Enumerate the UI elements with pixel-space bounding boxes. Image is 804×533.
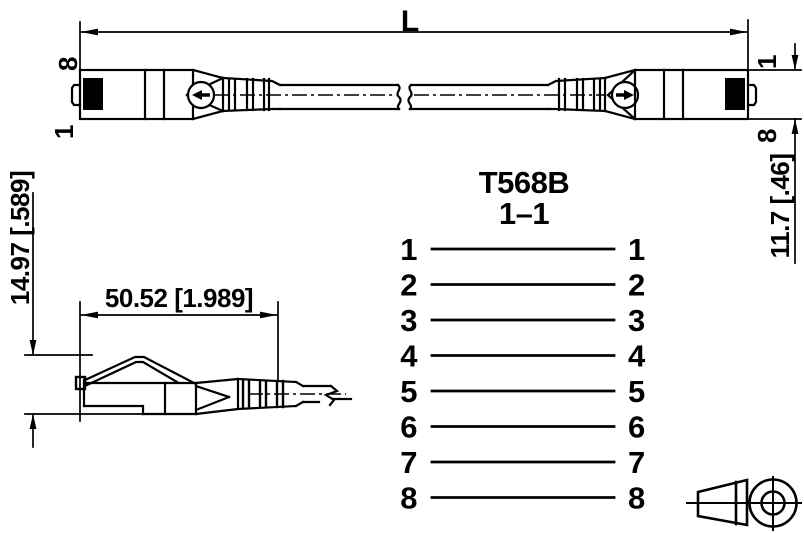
wiring-pin-left-4: 4 [400, 339, 418, 374]
wiring-pin-left-2: 2 [400, 268, 417, 303]
wiring-row-4: 4 4 [400, 339, 646, 374]
plug-contacts [83, 78, 103, 110]
plug-height-dim-label: 14.97 [.589] [5, 171, 35, 305]
wiring-diagram: T568B 1–1 1 1 2 2 3 3 4 4 5 5 6 [400, 165, 646, 516]
plug-contacts [725, 78, 745, 110]
wiring-pin-right-6: 6 [628, 410, 645, 445]
wiring-row-5: 5 5 [400, 374, 645, 409]
plug-nose [748, 85, 756, 105]
side-view: 50.52 [1.989] 14.97 [.589] [5, 171, 351, 447]
wiring-row-6: 6 6 [400, 410, 645, 445]
projection-symbol [687, 477, 801, 530]
left-end-pin-labels: 8 1 [49, 57, 83, 139]
wiring-pin-right-8: 8 [628, 481, 645, 516]
wiring-row-2: 2 2 [400, 268, 645, 303]
wiring-pin-left-5: 5 [400, 374, 417, 409]
right-end-pin1-label: 1 [752, 55, 782, 69]
wiring-pin-left-7: 7 [400, 445, 417, 480]
overall-length-dimension: L [80, 5, 748, 69]
wiring-row-8: 8 8 [400, 481, 645, 516]
wiring-row-3: 3 3 [400, 303, 645, 338]
wiring-standard-label: T568B [479, 165, 570, 200]
wiring-pin-left-8: 8 [400, 481, 417, 516]
plug-length-dim-label: 50.52 [1.989] [105, 283, 253, 313]
top-view: L 8 1 [49, 5, 801, 263]
wiring-row-1: 1 1 [400, 232, 645, 267]
wiring-pin-right-2: 2 [628, 268, 645, 303]
wiring-pin-left-6: 6 [400, 410, 417, 445]
technical-drawing-page: L 8 1 [0, 0, 804, 533]
connector-height-dim-label: 11.7 [.46] [765, 154, 795, 259]
cable-assembly-drawing: L 8 1 [0, 0, 804, 533]
wiring-pin-right-3: 3 [628, 303, 645, 338]
cable-break [397, 85, 400, 109]
plug-nose [72, 85, 80, 105]
wiring-pin-left-3: 3 [400, 303, 417, 338]
cable [214, 85, 606, 109]
connector-height-dimension: 1 8 11.7 [.46] [750, 44, 801, 263]
length-label: L [401, 5, 419, 38]
wiring-pin-left-1: 1 [400, 232, 417, 267]
wiring-row-7: 7 7 [400, 445, 645, 480]
right-end-pin8-label: 8 [752, 129, 782, 143]
cable-break [326, 386, 337, 405]
wiring-pin-right-7: 7 [628, 445, 645, 480]
wiring-mapping-label: 1–1 [499, 196, 549, 231]
wiring-pin-right-5: 5 [628, 374, 645, 409]
plug-profile [76, 357, 351, 414]
left-end-pin8-label: 8 [53, 57, 83, 71]
left-end-pin1-label: 1 [49, 125, 79, 139]
strain-relief-boot [223, 78, 280, 85]
wiring-pin-right-4: 4 [628, 339, 646, 374]
wiring-pin-right-1: 1 [628, 232, 645, 267]
